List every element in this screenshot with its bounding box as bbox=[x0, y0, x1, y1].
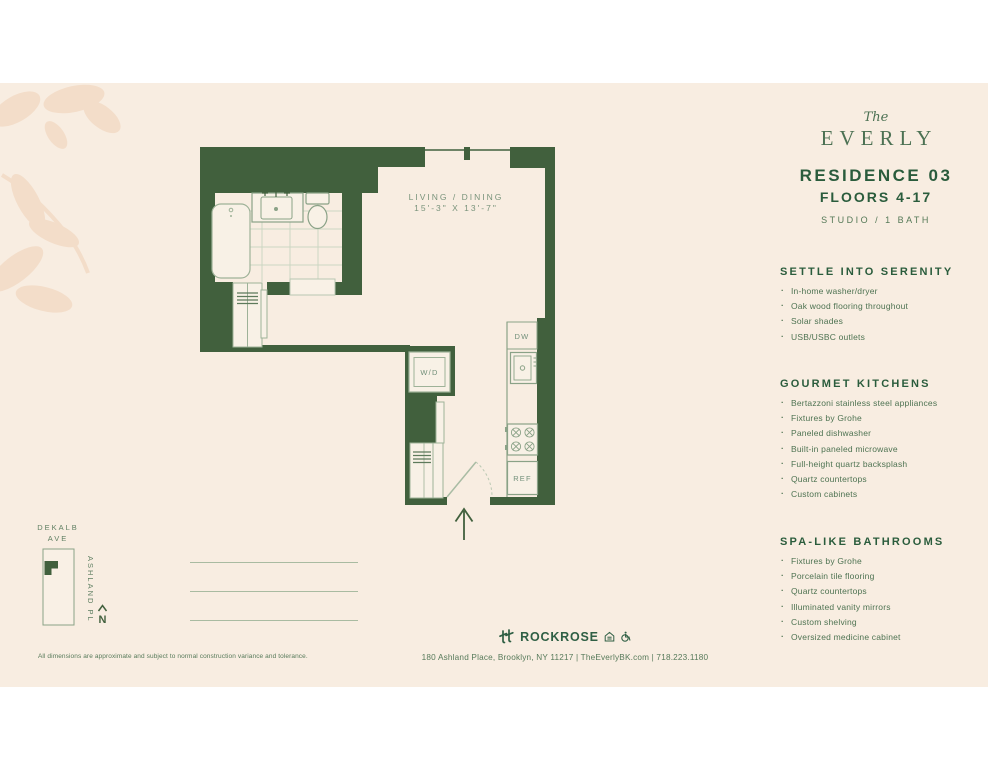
bathroom-door-opening bbox=[290, 279, 335, 295]
wd-label: W/D bbox=[420, 368, 438, 377]
accessibility-icon bbox=[620, 631, 631, 642]
footer: ROCKROSE 180 Ashland Place, Brooklyn, NY… bbox=[375, 629, 755, 662]
feature-item: Custom cabinets bbox=[780, 490, 990, 499]
feature-item: In-home washer/dryer bbox=[780, 287, 990, 296]
feature-item: Oak wood flooring throughout bbox=[780, 302, 990, 311]
feature-item: Illuminated vanity mirrors bbox=[780, 603, 990, 612]
rockrose-mark-icon bbox=[499, 629, 515, 644]
feature-section-bathrooms: SPA-LIKE BATHROOMS Fixtures by Grohe Por… bbox=[780, 536, 990, 648]
closet-shelves-upper bbox=[233, 283, 267, 347]
dw-label: DW bbox=[515, 332, 530, 341]
feature-item: Custom shelving bbox=[780, 618, 990, 627]
north-indicator: N bbox=[99, 606, 107, 627]
note-line bbox=[190, 591, 358, 592]
feature-item: Bertazzoni stainless steel appliances bbox=[780, 399, 990, 408]
brand-name: EVERLY bbox=[770, 126, 982, 151]
toilet bbox=[306, 193, 329, 229]
rockrose-logo: ROCKROSE bbox=[375, 629, 755, 644]
brand-logo: The EVERLY RESIDENCE 03 FLOORS 4-17 STUD… bbox=[770, 110, 982, 225]
note-line bbox=[190, 562, 358, 563]
bathtub bbox=[212, 204, 250, 278]
feature-item: Oversized medicine cabinet bbox=[780, 633, 990, 642]
feature-item: Fixtures by Grohe bbox=[780, 414, 990, 423]
note-line bbox=[190, 620, 358, 621]
washer-dryer: W/D bbox=[409, 352, 450, 392]
entry-door bbox=[447, 462, 492, 497]
residence-floors: FLOORS 4-17 bbox=[770, 189, 982, 205]
leaf-decoration bbox=[0, 83, 150, 333]
map-building-outline bbox=[43, 549, 74, 625]
feature-item: Full-height quartz backsplash bbox=[780, 460, 990, 469]
feature-item: Solar shades bbox=[780, 317, 990, 326]
brand-the: The bbox=[770, 110, 982, 125]
section-heading: GOURMET KITCHENS bbox=[780, 378, 990, 390]
feature-item: Porcelain tile flooring bbox=[780, 572, 990, 581]
feature-item: Fixtures by Grohe bbox=[780, 557, 990, 566]
north-label: N bbox=[99, 614, 107, 626]
stove bbox=[505, 424, 538, 455]
location-map: DEKALB AVE ASHLAND PL N bbox=[28, 515, 123, 637]
feature-item: Quartz countertops bbox=[780, 587, 990, 596]
footer-address: 180 Ashland Place, Brooklyn, NY 11217 | … bbox=[375, 653, 755, 662]
feature-item: Paneled dishwasher bbox=[780, 429, 990, 438]
feature-item: USB/USBC outlets bbox=[780, 333, 990, 342]
refrigerator: REF bbox=[508, 462, 538, 495]
equal-housing-icon bbox=[604, 631, 615, 642]
feature-item: Quartz countertops bbox=[780, 475, 990, 484]
map-street-top-line1: DEKALB bbox=[37, 523, 79, 532]
feature-item: Built-in paneled microwave bbox=[780, 445, 990, 454]
kitchen: DW REF bbox=[505, 322, 538, 497]
vanity-sink bbox=[252, 191, 303, 222]
map-street-top-line2: AVE bbox=[48, 534, 68, 543]
feature-section-serenity: SETTLE INTO SERENITY In-home washer/drye… bbox=[780, 266, 990, 348]
room-label-line1: LIVING / DINING bbox=[409, 192, 504, 202]
entry-arrow bbox=[456, 509, 473, 540]
residence-title: RESIDENCE 03 bbox=[770, 166, 982, 186]
feature-section-kitchens: GOURMET KITCHENS Bertazzoni stainless st… bbox=[780, 378, 990, 505]
oven bbox=[511, 353, 538, 384]
room-label-line2: 15'-3" X 13'-7" bbox=[414, 203, 498, 213]
footer-disclaimer: All dimensions are approximate and subje… bbox=[38, 653, 308, 660]
map-street-side: ASHLAND PL bbox=[86, 556, 95, 623]
section-heading: SETTLE INTO SERENITY bbox=[780, 266, 990, 278]
rockrose-wordmark: ROCKROSE bbox=[520, 630, 599, 644]
floorplan: W/D DW bbox=[195, 138, 575, 550]
room-label: LIVING / DINING 15'-3" X 13'-7" bbox=[409, 192, 504, 213]
ref-label: REF bbox=[513, 474, 532, 483]
section-heading: SPA-LIKE BATHROOMS bbox=[780, 536, 990, 548]
residence-type: STUDIO / 1 BATH bbox=[770, 215, 982, 225]
